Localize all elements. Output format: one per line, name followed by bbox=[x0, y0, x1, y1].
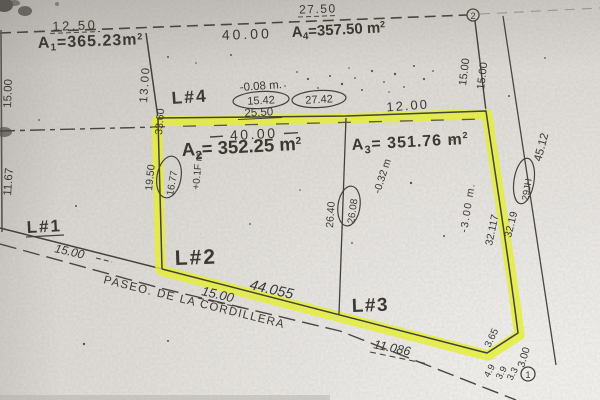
svg-text:15.00: 15.00 bbox=[2, 79, 15, 108]
svg-text:33.60: 33.60 bbox=[153, 108, 167, 135]
svg-text:27.42: 27.42 bbox=[305, 93, 333, 106]
svg-text:40.00: 40.00 bbox=[222, 25, 273, 43]
svg-text:26.40: 26.40 bbox=[324, 201, 338, 228]
svg-text:L#1: L#1 bbox=[26, 216, 62, 237]
svg-text:1: 1 bbox=[525, 370, 530, 380]
svg-text:L#4: L#4 bbox=[171, 86, 208, 108]
svg-text:L#2: L#2 bbox=[174, 246, 217, 270]
svg-text:12.00: 12.00 bbox=[386, 97, 429, 115]
svg-text:2: 2 bbox=[470, 11, 475, 21]
svg-text:13.00: 13.00 bbox=[138, 66, 153, 103]
svg-text:27.50: 27.50 bbox=[299, 1, 337, 16]
svg-text:12.50: 12.50 bbox=[52, 17, 98, 34]
svg-text:11.67: 11.67 bbox=[2, 168, 16, 197]
svg-text:L#3: L#3 bbox=[351, 295, 389, 317]
